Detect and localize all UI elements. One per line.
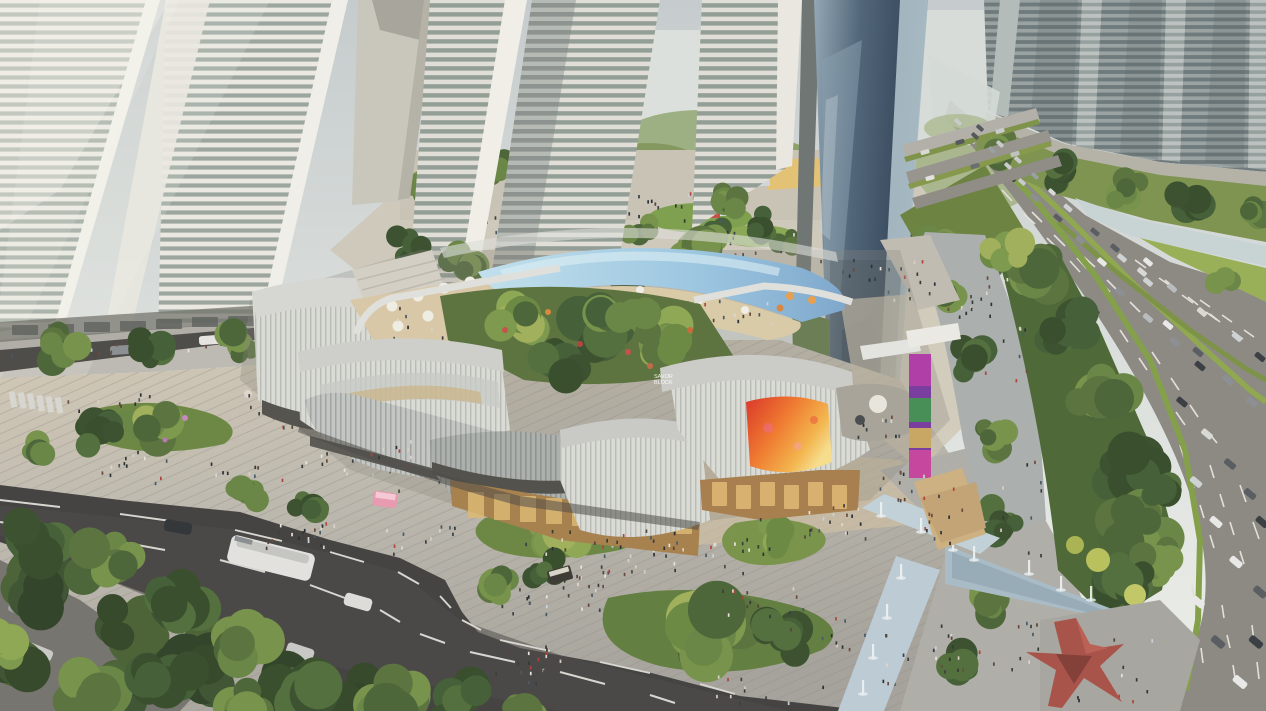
svg-text:BLOCK: BLOCK [654, 380, 673, 386]
